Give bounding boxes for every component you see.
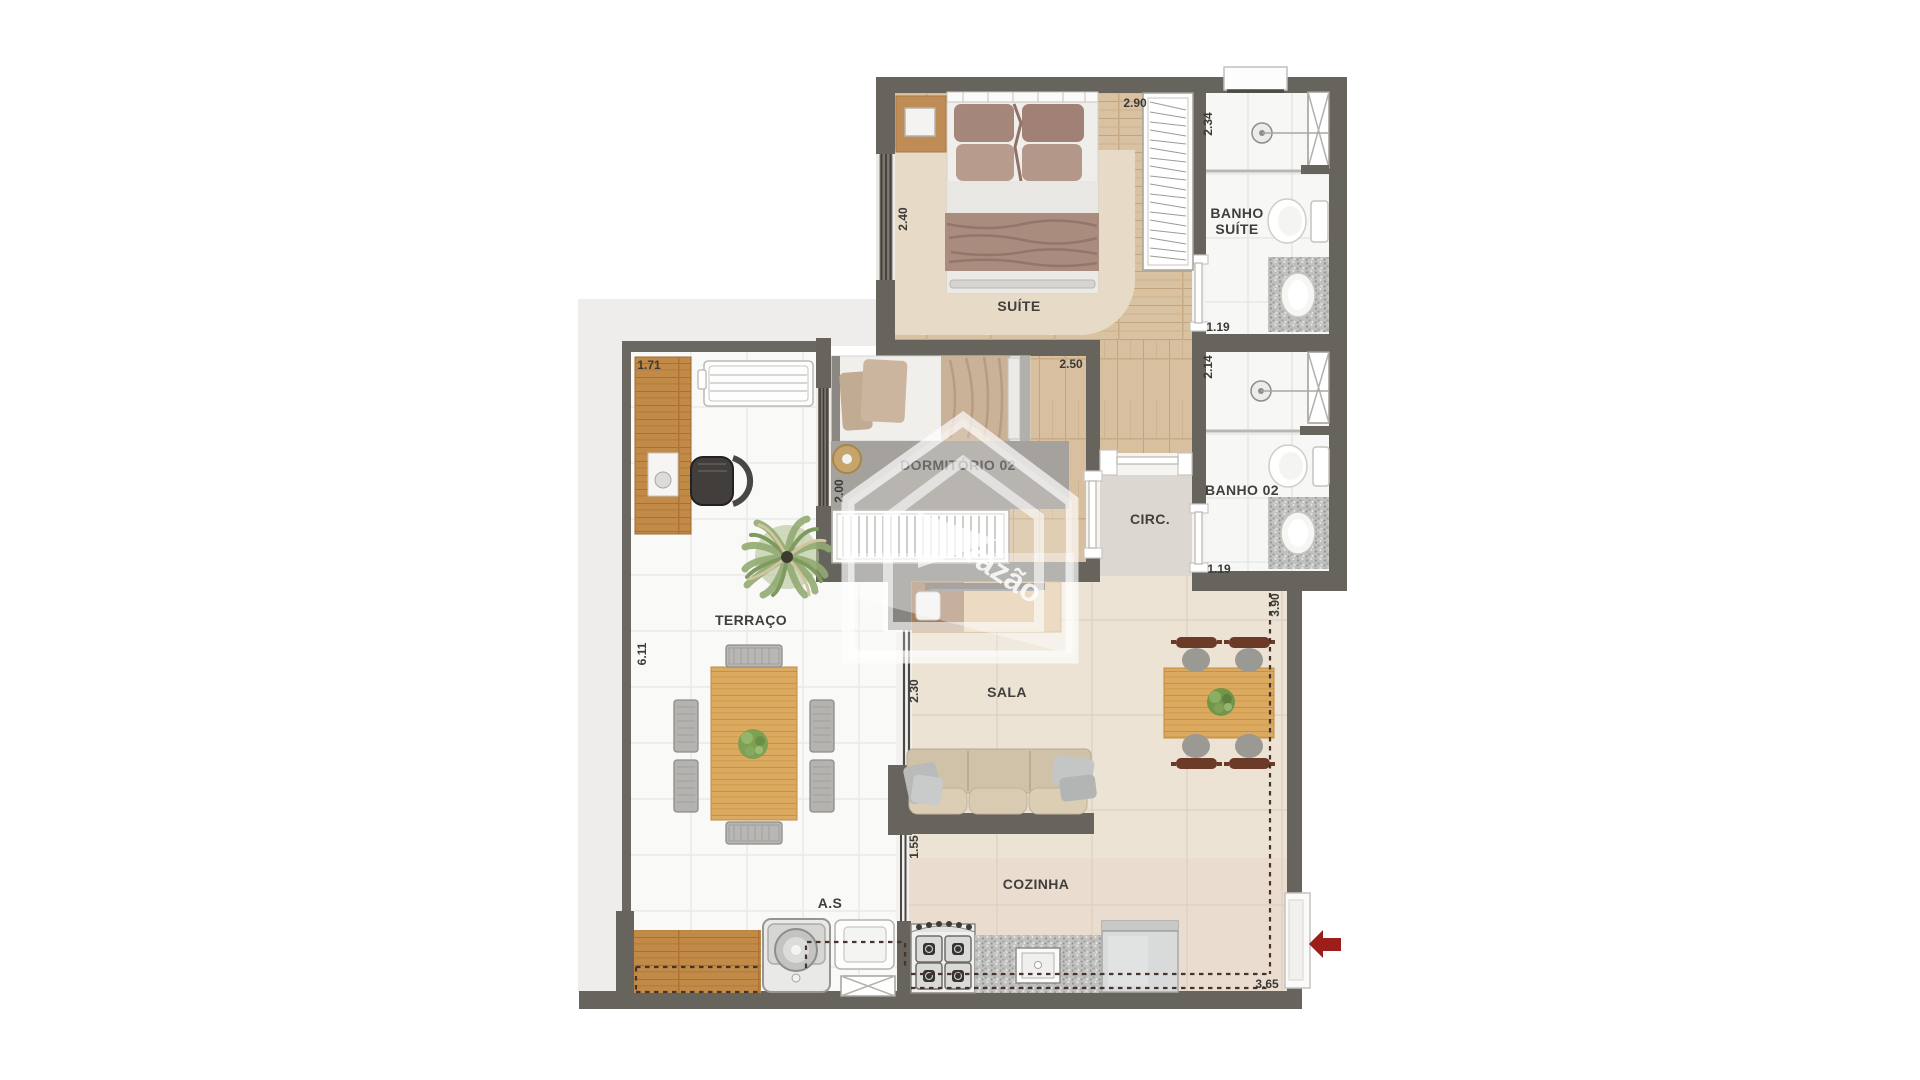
svg-text:COZINHA: COZINHA — [1003, 876, 1070, 892]
svg-text:2.30: 2.30 — [907, 679, 921, 703]
svg-text:1.55: 1.55 — [907, 835, 921, 859]
svg-text:2.40: 2.40 — [896, 207, 910, 231]
svg-text:2.14: 2.14 — [1201, 355, 1215, 379]
svg-text:6.11: 6.11 — [635, 642, 649, 665]
svg-text:1.19: 1.19 — [1207, 562, 1231, 576]
svg-text:SUÍTE: SUÍTE — [1215, 221, 1258, 237]
svg-text:1.71: 1.71 — [637, 358, 661, 372]
svg-text:CIRC.: CIRC. — [1130, 511, 1170, 527]
svg-text:3.65: 3.65 — [1255, 977, 1279, 991]
svg-text:BANHO 02: BANHO 02 — [1205, 482, 1279, 498]
svg-text:3.90: 3.90 — [1268, 593, 1282, 617]
svg-text:A.S: A.S — [818, 895, 843, 911]
svg-text:2.90: 2.90 — [1123, 96, 1147, 110]
svg-text:2.34: 2.34 — [1201, 112, 1215, 136]
svg-text:1.19: 1.19 — [1206, 320, 1230, 334]
svg-text:TERRAÇO: TERRAÇO — [715, 612, 787, 628]
svg-text:BANHO: BANHO — [1210, 205, 1263, 221]
svg-text:SALA: SALA — [987, 684, 1027, 700]
svg-text:2.50: 2.50 — [1059, 357, 1083, 371]
svg-text:SUÍTE: SUÍTE — [997, 298, 1040, 314]
